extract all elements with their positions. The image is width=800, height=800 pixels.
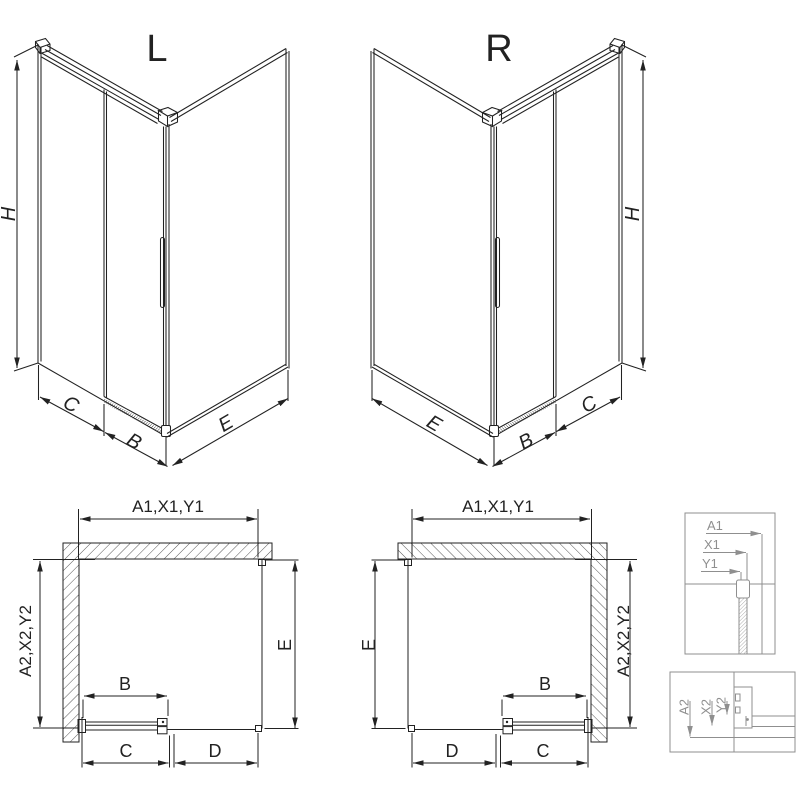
dim-label-h-left: H: [0, 206, 20, 221]
plan-left-dim-c: C: [120, 741, 133, 761]
plan-left-dim-d: D: [209, 741, 222, 761]
detail-label-x2: X2: [699, 699, 714, 715]
variant-label-left: L: [146, 28, 167, 70]
plan-right-dim-b: B: [539, 674, 551, 694]
detail-label-x1: X1: [704, 537, 720, 552]
plan-left-dim-a1: A1,X1,Y1: [132, 497, 204, 516]
technical-drawing-sheet: L H C B E R H C B E A1,X1,Y1 A2,X2,Y2 E …: [0, 0, 800, 800]
variant-label-right: R: [485, 28, 512, 70]
detail-depth-screw: [746, 718, 749, 721]
plan-left-dim-a2: A2,X2,Y2: [16, 605, 35, 677]
detail-label-a2: A2: [677, 699, 692, 715]
detail-label-a1: A1: [707, 518, 723, 533]
plan-right-dim-a1: A1,X1,Y1: [462, 497, 534, 516]
plan-left-dim-b: B: [119, 674, 131, 694]
plan-left-dim-e: E: [275, 639, 295, 651]
plan-right-dim-a2: A2,X2,Y2: [614, 605, 633, 677]
detail-label-y2: Y2: [714, 697, 729, 713]
plan-right-dim-e: E: [359, 639, 379, 651]
detail-width-profile: [737, 580, 750, 598]
plan-right-dim-c: C: [537, 741, 550, 761]
shower-enclosure-drawing: L H C B E R H C B E A1,X1,Y1 A2,X2,Y2 E …: [0, 0, 800, 800]
detail-label-y1: Y1: [702, 556, 718, 571]
plan-right-dim-d: D: [446, 741, 459, 761]
dim-label-h-right: H: [622, 206, 644, 221]
